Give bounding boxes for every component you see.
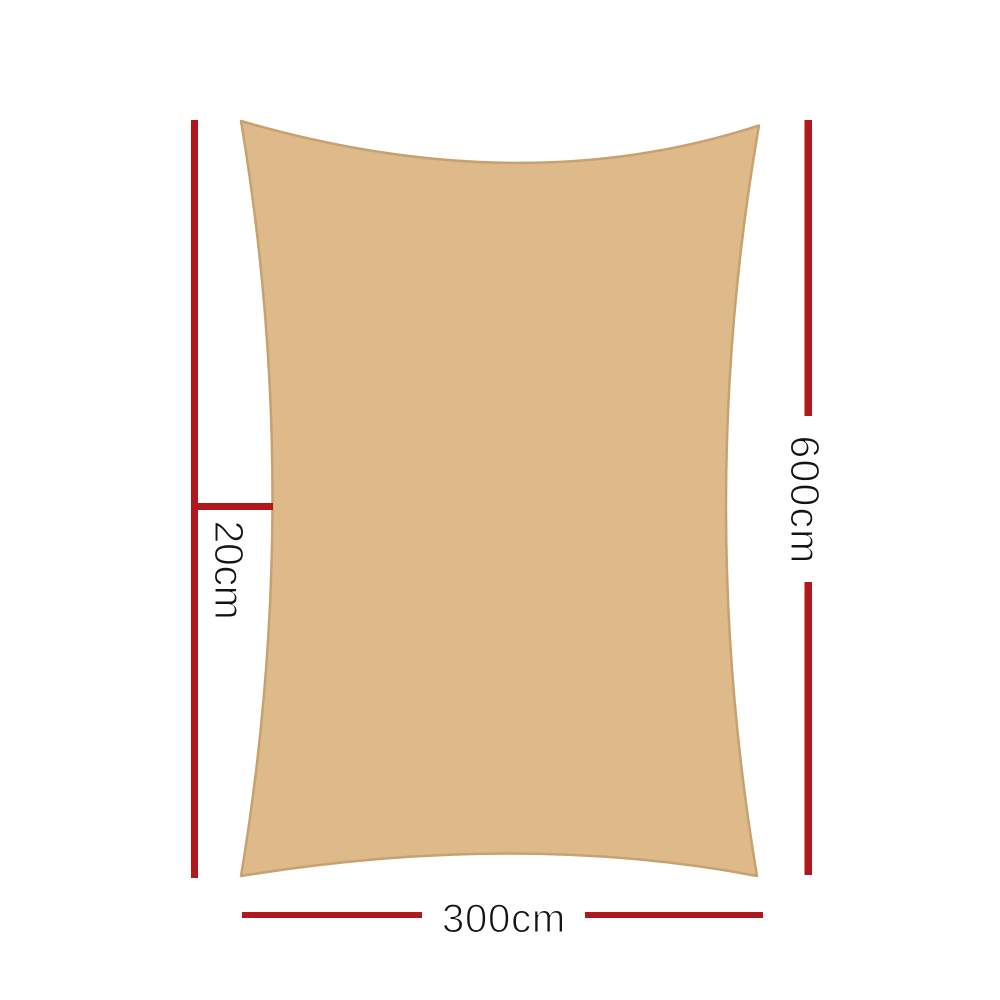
svg-text:20cm: 20cm xyxy=(206,520,252,619)
svg-text:600cm: 600cm xyxy=(782,435,828,564)
svg-text:300cm: 300cm xyxy=(442,897,566,941)
